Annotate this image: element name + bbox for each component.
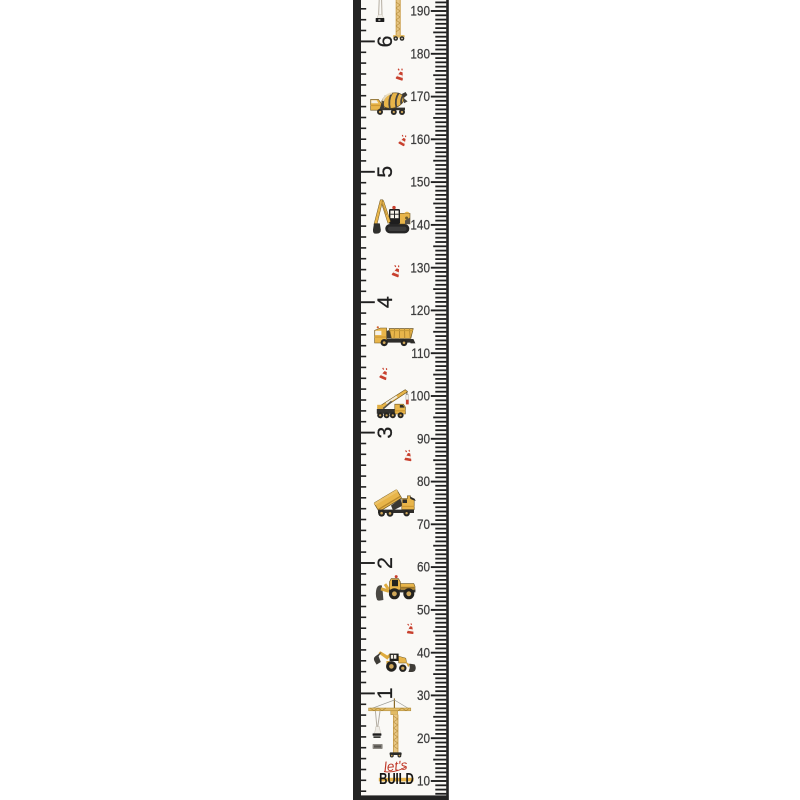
svg-text:4: 4 [373,296,397,308]
svg-text:50: 50 [417,602,430,618]
svg-text:2: 2 [373,557,397,569]
svg-text:BUILD: BUILD [379,769,414,787]
svg-text:40: 40 [417,644,430,660]
svg-text:30: 30 [417,687,430,703]
svg-text:120: 120 [410,302,430,318]
svg-text:150: 150 [410,174,430,190]
svg-text:170: 170 [410,88,430,104]
svg-text:5: 5 [373,166,397,178]
svg-text:130: 130 [410,259,430,275]
svg-text:20: 20 [417,730,430,746]
svg-text:110: 110 [411,345,430,361]
svg-text:190: 190 [410,3,430,19]
svg-text:60: 60 [417,559,430,575]
svg-text:10: 10 [417,773,430,789]
svg-text:90: 90 [417,430,430,446]
svg-text:70: 70 [417,516,430,532]
svg-text:140: 140 [410,217,430,233]
svg-text:160: 160 [410,131,430,147]
svg-text:100: 100 [410,388,430,404]
svg-text:80: 80 [417,473,430,489]
svg-text:180: 180 [410,45,430,61]
svg-text:1: 1 [373,687,397,699]
svg-text:3: 3 [373,427,397,439]
